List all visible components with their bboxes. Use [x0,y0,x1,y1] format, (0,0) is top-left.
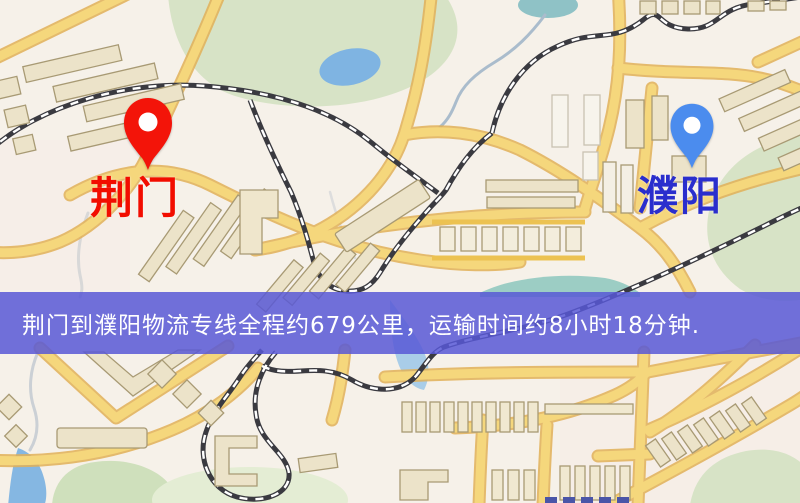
origin-pin-hole [139,113,158,132]
destination-location-pin-icon[interactable] [666,102,718,170]
origin-location-pin-icon[interactable] [120,96,176,172]
destination-pin-hole [684,117,701,134]
origin-pin-shape [124,98,172,170]
route-info-banner: 荆门到濮阳物流专线全程约679公里，运输时间约8小时18分钟. [0,292,800,354]
origin-city-label: 荆门 [90,178,180,221]
map-canvas[interactable] [0,0,800,503]
map-screenshot: 荆门 濮阳 荆门到濮阳物流专线全程约679公里，运输时间约8小时18分钟. [0,0,800,503]
destination-city-label: 濮阳 [637,176,723,217]
destination-pin-shape [671,104,714,168]
